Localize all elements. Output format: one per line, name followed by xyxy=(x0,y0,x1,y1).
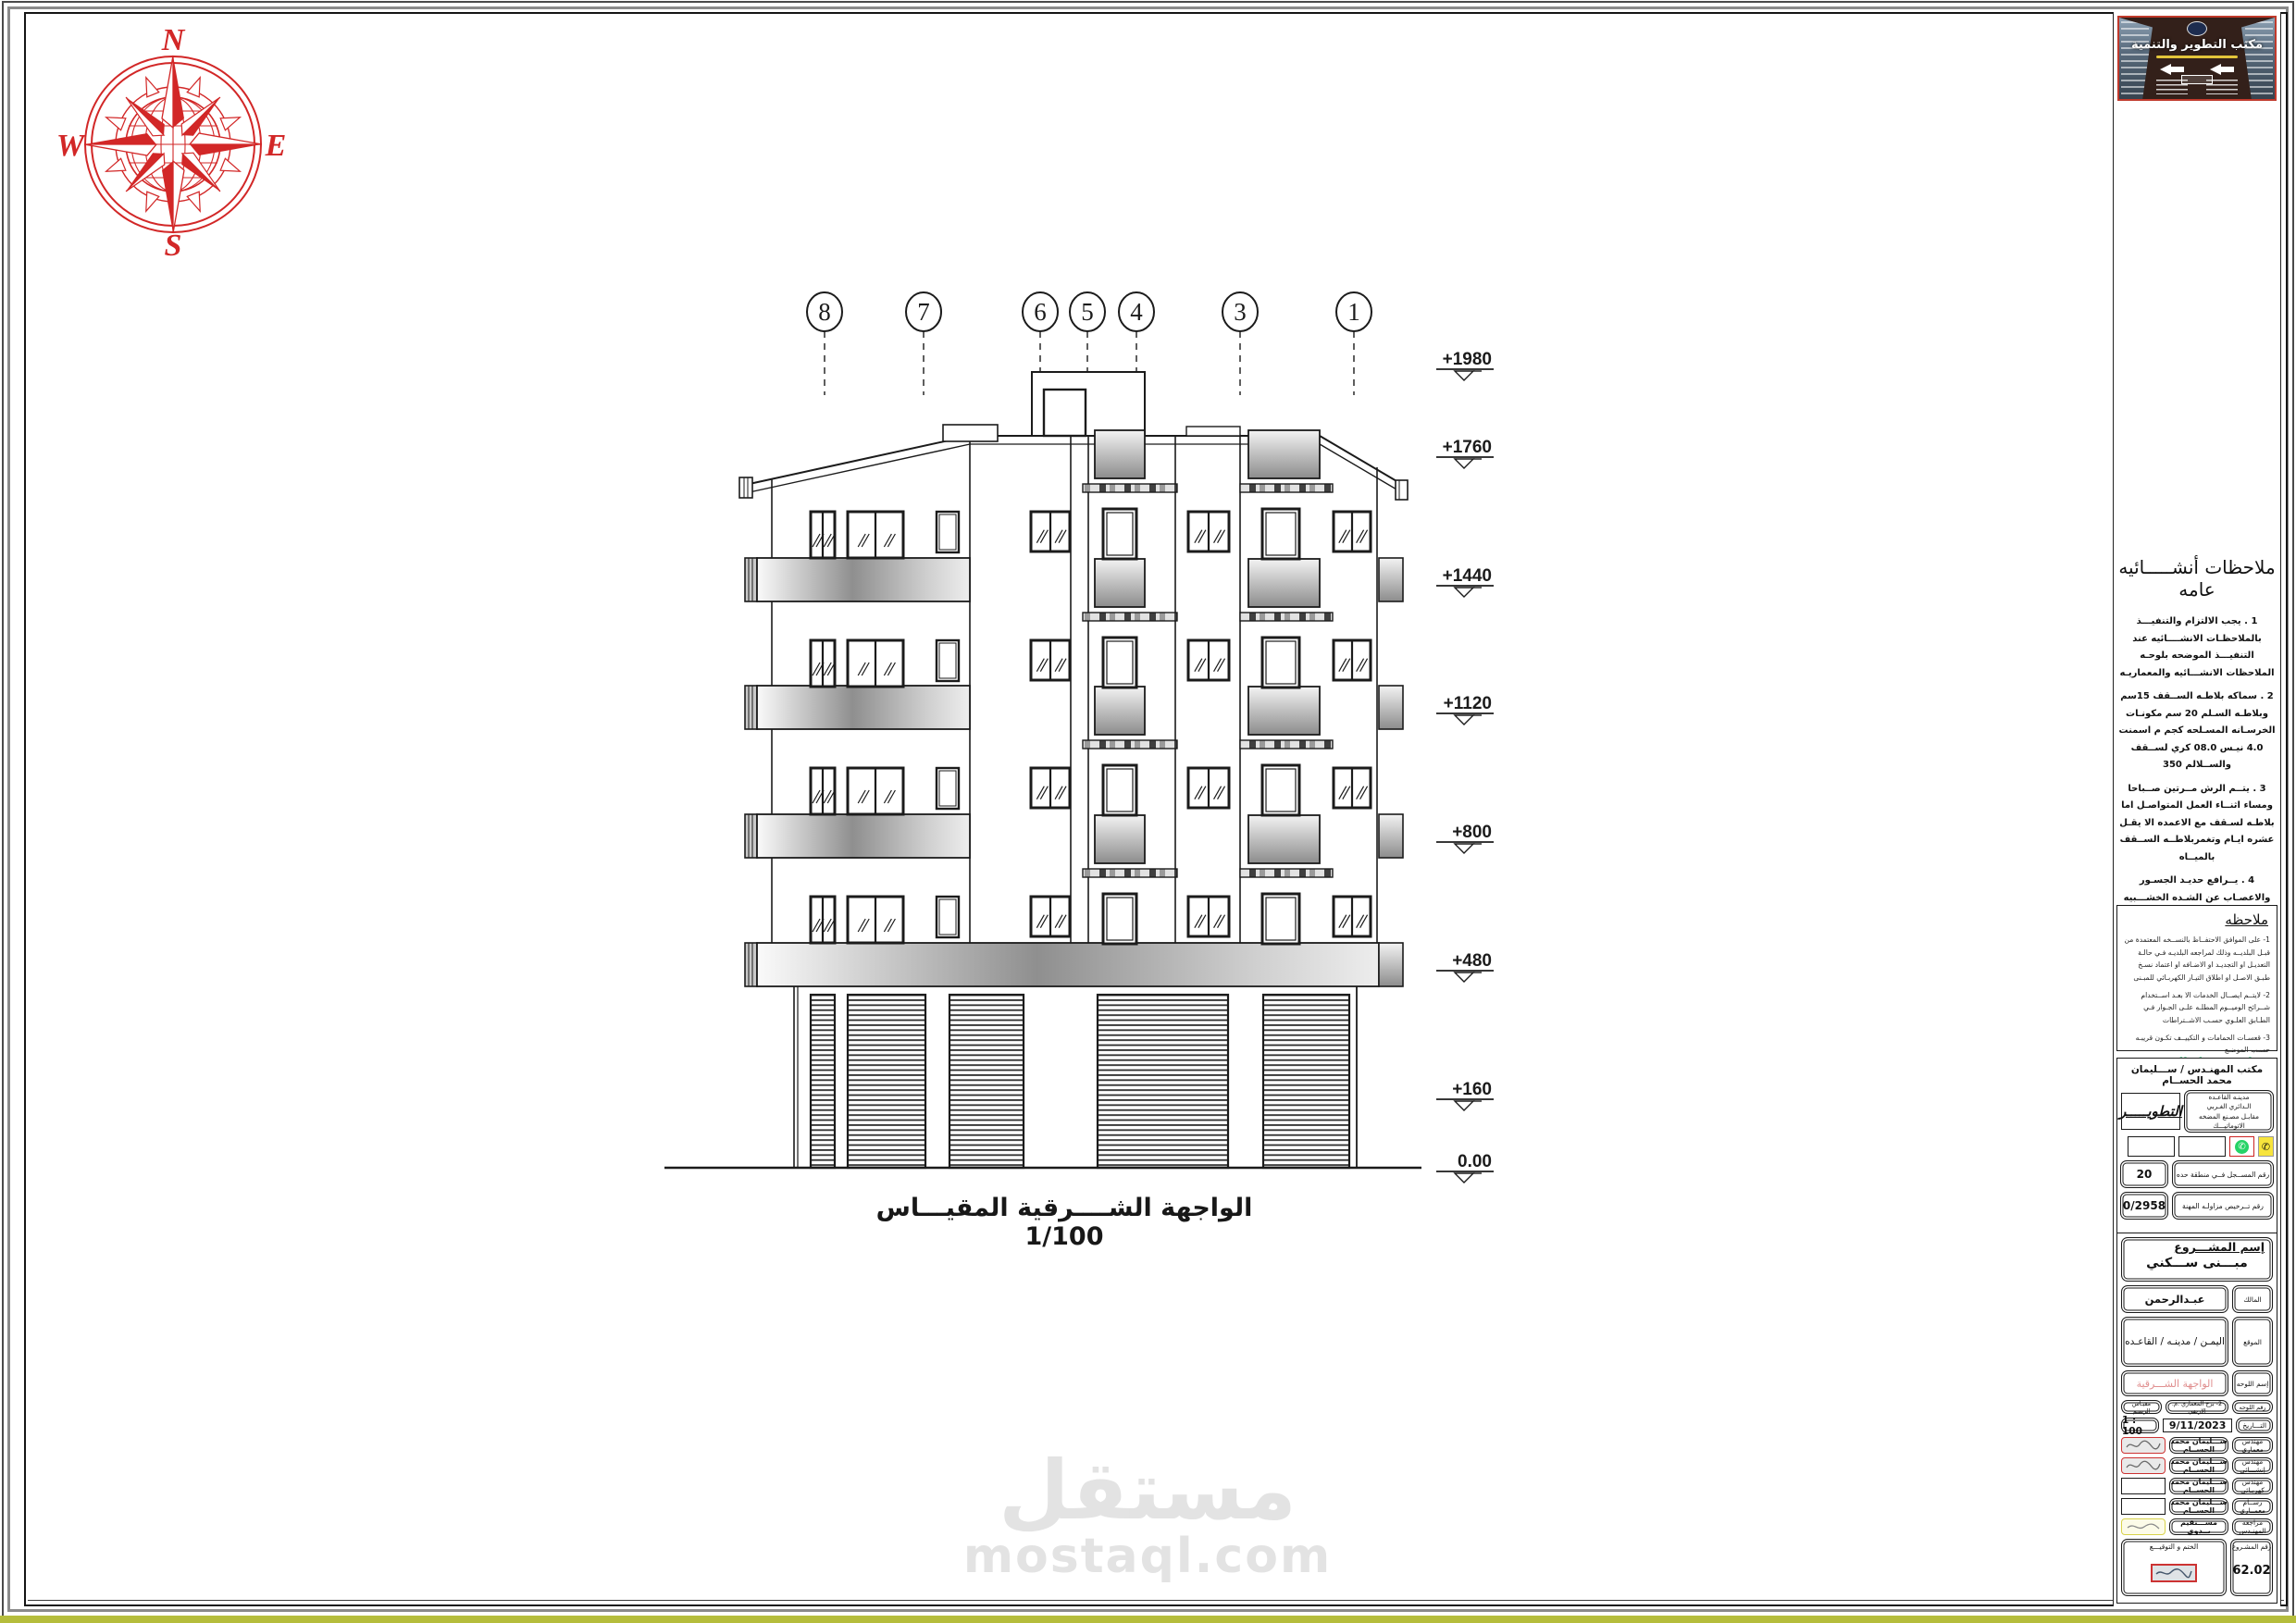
review-signature xyxy=(2121,1518,2166,1535)
office-banner: مكتب التطوير والتنمية xyxy=(2117,16,2277,101)
elevation-label: +800 xyxy=(1452,823,1492,842)
elevation-label: +1980 xyxy=(1443,350,1492,369)
title-block-panel: مكتب التطوير والتنمية ملاحظات أنشـــــائ… xyxy=(2113,12,2281,1606)
office-stamp xyxy=(2151,1564,2197,1582)
contact-box-empty-1 xyxy=(2178,1136,2226,1157)
license-value: 0/2958 xyxy=(2120,1192,2168,1220)
draftsman-signature-empty xyxy=(2121,1498,2166,1515)
office-address-box: مدينـه القاعـده الـدائري الغـربي مقابـل … xyxy=(2184,1090,2274,1133)
structural-signature xyxy=(2121,1457,2166,1474)
office-info-box: مكتب المهنـدس / ســـليمان محمد الحســام … xyxy=(2116,1058,2277,1233)
architect-label: مهندس معماري xyxy=(2232,1437,2273,1454)
elevation-label: +1760 xyxy=(1443,438,1492,457)
draftsman-name: ســـليمان محمد الحســام xyxy=(2169,1498,2228,1515)
owner-value: عبـدالرحمن xyxy=(2121,1285,2228,1313)
license-label: رقم تــرخيص مزاولـه المهنة xyxy=(2172,1192,2274,1220)
remarks-box: ملاحظه 1- على الموافق الاحتفــاظ بالنســ… xyxy=(2116,905,2277,1051)
electrical-engineer-label: مهندس كهربـائي xyxy=(2232,1478,2273,1494)
address-line: مدينـه القاعـده xyxy=(2185,1093,2273,1102)
phone-icon: ✆ xyxy=(2258,1136,2274,1157)
stamp-label: الختم و التوقيـــع xyxy=(2122,1542,2226,1552)
registration-label: رقم المســجل فــي منطقة حده xyxy=(2172,1160,2274,1188)
address-line: الاتوماتيـــك xyxy=(2185,1121,2273,1131)
grid-bubble-label: 7 xyxy=(917,298,930,326)
review-label: مراجعه المهنـدس xyxy=(2232,1518,2273,1535)
grid-bubble-label: 8 xyxy=(818,298,831,326)
electrical-engineer-name: ســـليمان محمد الحســام xyxy=(2169,1478,2228,1494)
banner-fineprint-right xyxy=(2206,80,2238,94)
sheet-name-label: إسم اللوحه xyxy=(2232,1370,2273,1396)
elevation-label: 0.00 xyxy=(1458,1152,1492,1171)
address-line: الـدائري الغـربي xyxy=(2185,1102,2273,1111)
watermark-domain: mostaql.com xyxy=(962,1532,1333,1581)
banner-fineprint-left xyxy=(2156,80,2188,94)
grid-bubble-label: 6 xyxy=(1034,298,1047,326)
banner-arrow-right-icon xyxy=(2210,64,2221,75)
grid-bubble-label: 1 xyxy=(1347,298,1360,326)
project-name-box: إسم المشـــروع مبـــنى ســـكني xyxy=(2121,1237,2273,1282)
architect-name: ســـليمان محمد الحســام xyxy=(2169,1437,2228,1454)
whatsapp-icon: ✆ xyxy=(2229,1136,2254,1157)
elevation-label: +160 xyxy=(1452,1080,1492,1099)
owner-label: المالك xyxy=(2232,1285,2273,1313)
elevation-label: +1120 xyxy=(1444,694,1492,713)
general-note-3: 3 . يتــم الرش مــرتين صــباحا ومساء اثن… xyxy=(2116,781,2278,867)
office-header: مكتب المهنـدس / ســـليمان محمد الحســام xyxy=(2120,1064,2274,1086)
sheet-name-value: الواجهة الشـــرقية xyxy=(2121,1370,2228,1396)
sheet-number-label: رقم اللوحه xyxy=(2232,1400,2273,1414)
electrical-signature-empty xyxy=(2121,1478,2166,1494)
watermark-arabic: مستقل xyxy=(962,1449,1333,1532)
drawing-sheet: { "drawing": { "grid_bubbles": ["8","7",… xyxy=(0,0,2296,1623)
project-number-label: رقم المشـروع xyxy=(2232,1542,2272,1551)
general-notes-title: ملاحظات أنشـــــائيه عامه xyxy=(2116,556,2278,601)
elevation-label: +1440 xyxy=(1443,566,1492,586)
project-number-box: رقم المشـروع 62.02 xyxy=(2230,1539,2273,1596)
banner-title: مكتب التطوير والتنمية xyxy=(2119,38,2275,52)
project-name-value: مبـــنى ســـكني xyxy=(2129,1256,2265,1270)
date-label: التـــاريخ xyxy=(2236,1418,2273,1433)
office-logo: التطويـــــر xyxy=(2121,1093,2180,1130)
contact-box-empty-2 xyxy=(2128,1136,2175,1157)
banner-subtitle-line xyxy=(2156,56,2238,58)
remark-2: 2- لايتــم ايصــال الخدمات الا بعـد اســ… xyxy=(2124,989,2270,1027)
location-label: الموقع xyxy=(2232,1317,2273,1367)
remarks-title: ملاحظه xyxy=(2124,911,2268,928)
remark-1: 1- على الموافق الاحتفــاظ بالنســخه المع… xyxy=(2124,934,2270,985)
remark-3: 3- قعسـات الحمامات و التكييــف تكـون قري… xyxy=(2124,1032,2270,1057)
banner-building-photo-left xyxy=(2119,18,2153,99)
project-number-value: 62.02 xyxy=(2232,1564,2270,1578)
date-value: 9/11/2023 xyxy=(2163,1419,2233,1432)
address-line: مقابـل مصـنع المضخه xyxy=(2185,1112,2273,1121)
structural-engineer-name: ســـليمان محمد الحســام xyxy=(2169,1457,2228,1474)
elevation-label: +480 xyxy=(1452,951,1492,971)
architect-signature xyxy=(2121,1437,2166,1454)
registration-value: 20 xyxy=(2120,1160,2168,1188)
grid-bubble-label: 3 xyxy=(1234,298,1247,326)
grid-bubble-label: 5 xyxy=(1081,298,1094,326)
scale-label: مقيـاس الرسـم xyxy=(2121,1400,2162,1414)
general-note-1: 1 . يجب الالتزام والتنفيـــذ بالملاحظـات… xyxy=(2116,613,2278,682)
location-value: اليمـن / مدينـه / القاعـده xyxy=(2121,1317,2228,1367)
draftsman-label: رســام معمــاري xyxy=(2232,1498,2273,1515)
title-block-main: إسم المشـــروع مبـــنى ســـكني المالك عب… xyxy=(2116,1233,2277,1604)
stamp-and-signature-box: الختم و التوقيـــع xyxy=(2121,1539,2227,1596)
project-name-label: إسم المشـــروع xyxy=(2129,1240,2265,1254)
banner-arrow-left-icon xyxy=(2160,64,2171,75)
sheet-number-value: 2- برج المعماري .م. الارضي xyxy=(2166,1400,2228,1414)
drawing-caption: الواجهة الشــــرقية المقيـــاس 1/100 xyxy=(833,1194,1296,1251)
reviewer-name: مســـتقيم بــدوي xyxy=(2169,1518,2228,1535)
general-note-2: 2 . سماكه بلاطـه الســقف 15سم وبلاطـه ال… xyxy=(2116,688,2278,774)
banner-building-photo-right xyxy=(2241,18,2275,99)
grid-bubble-label: 4 xyxy=(1130,298,1143,326)
watermark: مستقل mostaql.com xyxy=(962,1449,1333,1581)
building-elevation-drawing: 8765431+1980+1760+1440+1120+800+480+1600… xyxy=(0,0,2296,1623)
scale-value: 1 : 100 xyxy=(2121,1418,2159,1433)
structural-engineer-label: مهندس إنشـــائي xyxy=(2232,1457,2273,1474)
banner-emblem-icon xyxy=(2187,21,2207,36)
